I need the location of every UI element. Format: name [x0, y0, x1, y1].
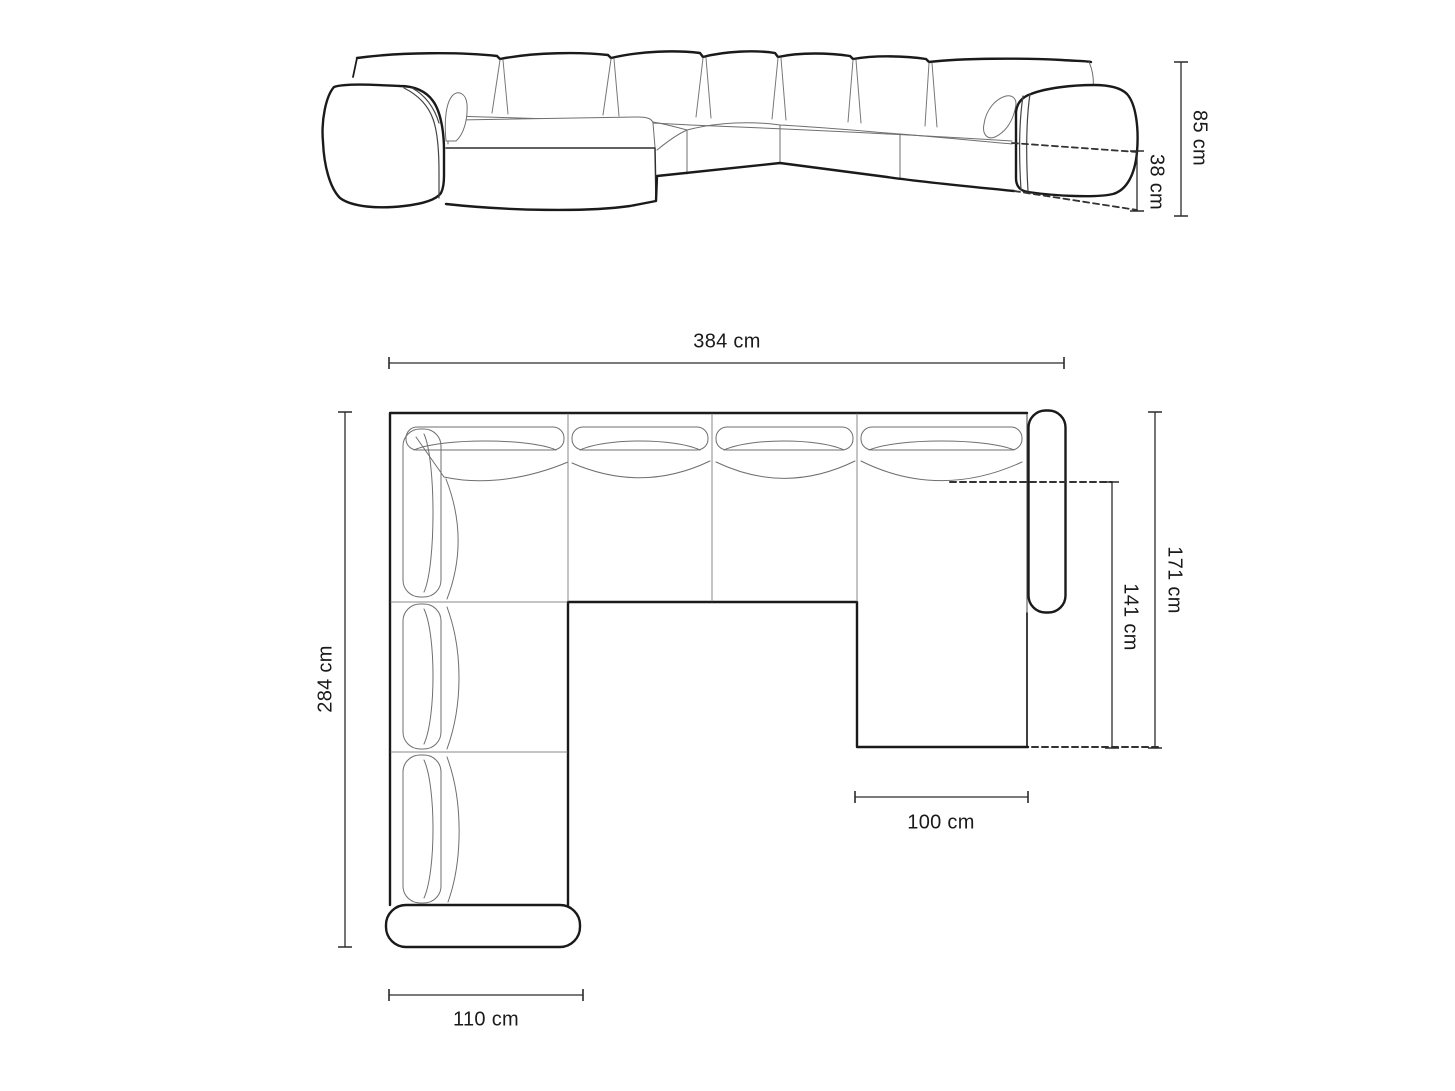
top-view-drawing — [386, 411, 1158, 948]
dimension-label-overall-height: 85 cm — [1188, 110, 1211, 166]
dimension-label-right-side-depth: 171 cm — [1163, 546, 1186, 613]
dimension-label-right-section-width: 100 cm — [907, 812, 974, 835]
dimension-label-right-inner-depth: 141 cm — [1119, 583, 1142, 650]
dimension-label-overall-width: 384 cm — [693, 331, 760, 354]
sofa-technical-drawing: 384 cm 284 cm 110 cm 100 cm 171 cm 141 c… — [0, 0, 1455, 1091]
front-view-drawing — [323, 51, 1138, 210]
drawing-svg — [0, 0, 1455, 1091]
dimension-label-left-side-depth: 284 cm — [315, 645, 338, 712]
dimension-label-seat-height: 38 cm — [1145, 154, 1168, 210]
dimension-label-left-section-width: 110 cm — [453, 1009, 519, 1032]
